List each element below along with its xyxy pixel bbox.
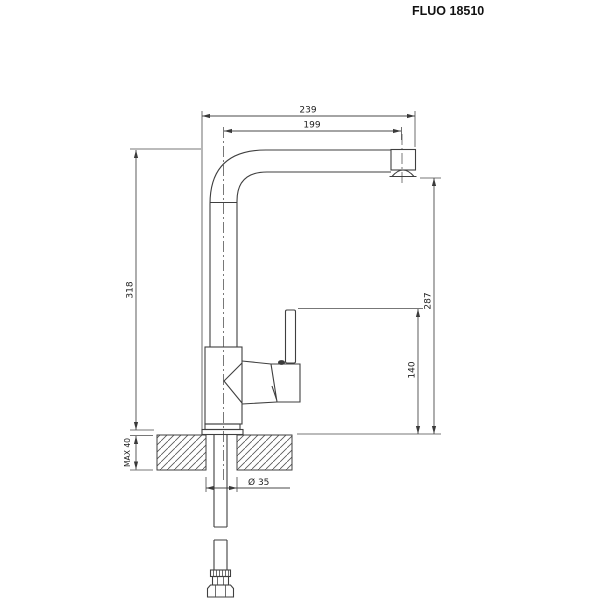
dim-label-dia35: Ø 35 — [248, 477, 269, 488]
knurled-collar — [211, 570, 231, 577]
spout-inner-contour — [237, 172, 391, 347]
faucet-technical-drawing: FLUO 18510 239 199 318 287 140 MAX 40 Ø … — [0, 0, 600, 600]
valve-cone — [224, 361, 277, 404]
under-counter-parts — [208, 435, 234, 598]
dim-label-287: 287 — [424, 292, 434, 309]
drawing-canvas: FLUO 18510 239 199 318 287 140 MAX 40 Ø … — [0, 0, 600, 600]
countertop-right-block — [237, 435, 292, 470]
dim-label-140: 140 — [408, 361, 418, 378]
countertop-left-block — [157, 435, 206, 470]
faucet-outline — [202, 150, 417, 435]
dim-label-199: 199 — [303, 121, 320, 131]
centerlines — [224, 127, 403, 480]
lever-pivot-dot — [278, 360, 285, 365]
cartridge-housing — [271, 364, 300, 402]
aerator-nozzle-dome — [390, 170, 417, 177]
compression-nut — [208, 585, 234, 597]
dim-label-239: 239 — [299, 106, 316, 116]
base-flange-upper — [205, 424, 240, 430]
aerator-head — [391, 150, 416, 171]
handle-lever — [286, 310, 296, 363]
supply-tube — [214, 540, 227, 570]
page-title: FLUO 18510 — [412, 4, 484, 18]
dim-max40 — [134, 436, 138, 470]
threaded-shank — [214, 435, 227, 528]
dim-label-max40: MAX 40 — [123, 438, 132, 467]
dim-label-318: 318 — [126, 281, 136, 298]
fitting-body — [213, 577, 229, 586]
base-flange-lower — [202, 430, 243, 435]
countertop-section — [157, 435, 292, 470]
